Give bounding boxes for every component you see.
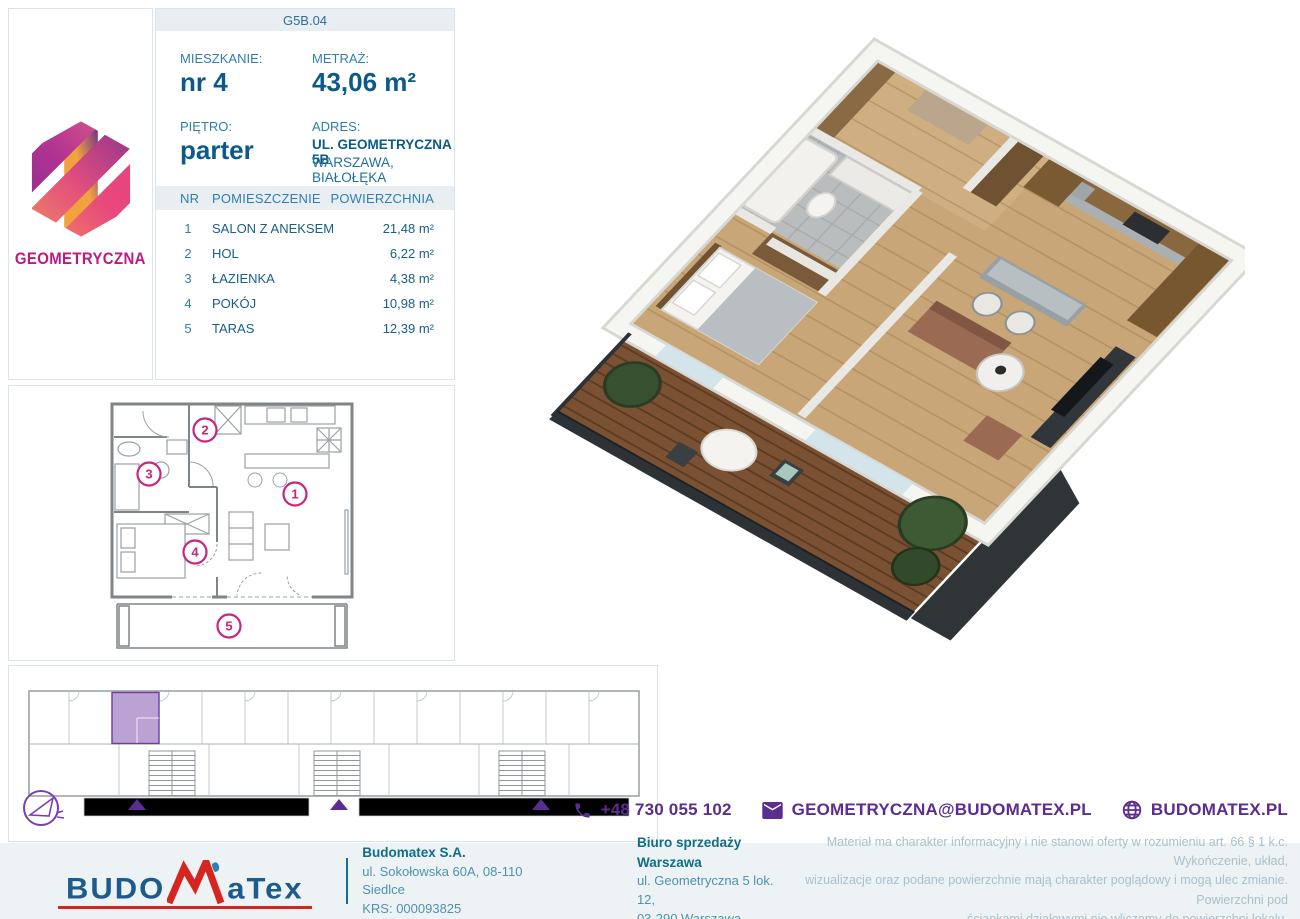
legal-disclaimer: Materiał ma charakter informacyjny i nie… xyxy=(787,833,1288,919)
table-row: 2 HOL 6,22 m² xyxy=(156,246,454,271)
company-info: Budomatex S.A. ul. Sokołowska 60A, 08-11… xyxy=(362,843,541,919)
highlighted-unit xyxy=(112,693,159,744)
unit-code: G5B.04 xyxy=(283,13,327,28)
sales-office-info: Biuro sprzedaży Warszawa ul. Geometryczn… xyxy=(637,833,787,919)
marker-4: 4 xyxy=(191,545,199,560)
geometryczna-logo-icon xyxy=(21,119,141,239)
envelope-icon xyxy=(762,802,783,819)
globe-icon xyxy=(1122,800,1142,820)
marker-1: 1 xyxy=(291,487,298,502)
address-city: WARSZAWA, BIAŁOŁĘKA xyxy=(312,155,454,185)
table-row: 4 POKÓJ 10,98 m² xyxy=(156,296,454,321)
room-name: TARAS xyxy=(212,321,254,336)
unit-code-strip: G5B.04 xyxy=(156,9,454,31)
marker-3: 3 xyxy=(145,467,152,482)
marker-2: 2 xyxy=(201,423,208,438)
col-nr: NR xyxy=(180,191,199,206)
col-name: POMIESZCZENIE xyxy=(212,191,321,206)
company-address: ul. Sokołowska 60A, 08-110 Siedlce xyxy=(362,864,522,898)
room-area: 4,38 m² xyxy=(390,271,434,286)
building-plan xyxy=(9,666,657,841)
rooms-table-header: NR POMIESZCZENIE POWIERZCHNIA xyxy=(156,186,454,210)
room-name: SALON Z ANEKSEM xyxy=(212,221,334,236)
budomatex-logo: BUDO aTex xyxy=(66,858,304,904)
budomatex-logo-underline xyxy=(58,906,312,910)
room-nr: 5 xyxy=(180,321,196,336)
phone-icon xyxy=(573,801,592,820)
website-link[interactable]: BUDOMATEX.PL xyxy=(1122,800,1288,820)
brand-name: GEOMETRYCZNA xyxy=(15,249,146,269)
office-address1: ul. Geometryczna 5 lok. 12, xyxy=(637,873,774,907)
apartment-card-page: GEOMETRYCZNA G5B.04 MIESZKANIE: nr 4 MET… xyxy=(0,0,1300,919)
floor-label: PIĘTRO: xyxy=(180,119,232,134)
developer-logo-box: GEOMETRYCZNA xyxy=(8,8,153,380)
area-label: METRAŻ: xyxy=(312,51,369,66)
room-area: 6,22 m² xyxy=(390,246,434,261)
floorplan-2d-box: 1 2 3 4 5 xyxy=(8,385,455,661)
website-url: BUDOMATEX.PL xyxy=(1151,800,1288,820)
room-nr: 3 xyxy=(180,271,196,286)
room-area: 12,39 m² xyxy=(383,321,434,336)
budomatex-logo-left: BUDO xyxy=(66,874,165,903)
contact-bar: +48 730 055 102 GEOMETRYCZNA@BUDOMATEX.P… xyxy=(573,800,1288,820)
footer-divider xyxy=(346,858,349,904)
office-address2: 03-290 Warszawa xyxy=(637,911,741,919)
room-nr: 2 xyxy=(180,246,196,261)
email-link[interactable]: GEOMETRYCZNA@BUDOMATEX.PL xyxy=(762,800,1092,820)
budomatex-m-icon xyxy=(167,860,225,904)
office-name: Biuro sprzedaży Warszawa xyxy=(637,833,787,872)
company-name: Budomatex S.A. xyxy=(362,843,541,863)
floor-value: parter xyxy=(180,135,254,166)
room-nr: 4 xyxy=(180,296,196,311)
email-address: GEOMETRYCZNA@BUDOMATEX.PL xyxy=(792,800,1092,820)
room-area: 21,48 m² xyxy=(383,221,434,236)
phone-number: +48 730 055 102 xyxy=(601,800,732,820)
budomatex-logo-right: aTex xyxy=(227,874,303,903)
table-row: 5 TARAS 12,39 m² xyxy=(156,321,454,346)
table-row: 3 ŁAZIENKA 4,38 m² xyxy=(156,271,454,296)
apartment-3d-render xyxy=(540,22,1245,667)
building-plan-box xyxy=(8,665,658,842)
marker-5: 5 xyxy=(225,619,232,634)
area-value: 43,06 m² xyxy=(312,67,416,98)
apartment-number: nr 4 xyxy=(180,67,228,98)
room-name: POKÓJ xyxy=(212,296,256,311)
room-area: 10,98 m² xyxy=(383,296,434,311)
col-area: POWIERZCHNIA xyxy=(330,191,434,206)
room-name: ŁAZIENKA xyxy=(212,271,275,286)
company-krs: KRS: 000093825 xyxy=(362,901,461,916)
apartment-label: MIESZKANIE: xyxy=(180,51,262,66)
room-nr: 1 xyxy=(180,221,196,236)
table-row: 1 SALON Z ANEKSEM 21,48 m² xyxy=(156,221,454,246)
floorplan-2d: 1 2 3 4 5 xyxy=(77,392,387,654)
address-label: ADRES: xyxy=(312,119,360,134)
phone-link[interactable]: +48 730 055 102 xyxy=(573,800,732,820)
unit-info-card: G5B.04 MIESZKANIE: nr 4 METRAŻ: 43,06 m²… xyxy=(155,8,455,380)
room-name: HOL xyxy=(212,246,239,261)
footer: BUDO aTex Budomatex S.A. ul. Sokołowska … xyxy=(0,843,1300,919)
